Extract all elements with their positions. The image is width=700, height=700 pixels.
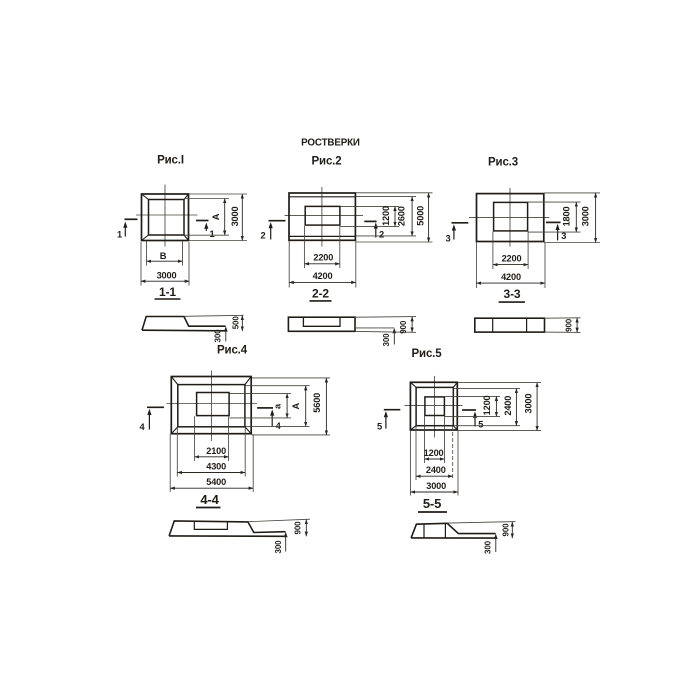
svg-text:900: 900 bbox=[565, 318, 574, 332]
svg-text:900: 900 bbox=[294, 521, 303, 535]
svg-text:300: 300 bbox=[274, 540, 283, 554]
svg-text:5400: 5400 bbox=[206, 477, 226, 487]
svg-text:Рис.4: Рис.4 bbox=[217, 345, 248, 357]
svg-text:1200: 1200 bbox=[482, 395, 492, 415]
svg-text:Рис.2: Рис.2 bbox=[312, 156, 342, 168]
svg-text:3000: 3000 bbox=[426, 481, 446, 491]
svg-text:Рис.5: Рис.5 bbox=[412, 348, 443, 360]
svg-text:300: 300 bbox=[214, 329, 223, 343]
svg-text:4-4: 4-4 bbox=[200, 492, 219, 507]
svg-text:4300: 4300 bbox=[206, 462, 226, 472]
svg-text:2: 2 bbox=[260, 231, 265, 241]
svg-text:3000: 3000 bbox=[157, 271, 177, 281]
svg-text:500: 500 bbox=[232, 316, 241, 330]
svg-text:300: 300 bbox=[382, 333, 391, 347]
svg-text:a: a bbox=[272, 403, 282, 409]
svg-text:2-2: 2-2 bbox=[312, 286, 329, 300]
svg-text:2100: 2100 bbox=[206, 446, 226, 456]
svg-text:300: 300 bbox=[483, 540, 492, 554]
svg-text:Рис.I: Рис.I bbox=[157, 155, 184, 167]
svg-text:2400: 2400 bbox=[426, 465, 446, 475]
svg-text:5-5: 5-5 bbox=[423, 496, 441, 511]
svg-text:2200: 2200 bbox=[502, 253, 522, 263]
svg-text:2200: 2200 bbox=[313, 253, 333, 263]
svg-text:900: 900 bbox=[399, 320, 408, 334]
svg-text:1-1: 1-1 bbox=[159, 285, 176, 299]
svg-text:2400: 2400 bbox=[503, 396, 513, 416]
svg-text:2: 2 bbox=[379, 230, 384, 240]
svg-text:A: A bbox=[211, 213, 221, 220]
svg-text:5600: 5600 bbox=[312, 393, 322, 413]
svg-text:900: 900 bbox=[502, 523, 511, 537]
svg-text:Рис.3: Рис.3 bbox=[488, 157, 518, 169]
svg-text:3: 3 bbox=[445, 234, 450, 244]
svg-text:1: 1 bbox=[117, 230, 122, 240]
svg-text:3-3: 3-3 bbox=[504, 287, 521, 301]
svg-text:5000: 5000 bbox=[415, 206, 425, 226]
svg-text:4200: 4200 bbox=[313, 271, 333, 281]
svg-text:3000: 3000 bbox=[523, 394, 533, 414]
svg-text:2600: 2600 bbox=[396, 206, 406, 226]
svg-text:5: 5 bbox=[478, 420, 483, 430]
svg-text:5: 5 bbox=[377, 422, 382, 432]
svg-text:3000: 3000 bbox=[230, 207, 240, 227]
svg-text:3000: 3000 bbox=[580, 206, 590, 226]
svg-text:1200: 1200 bbox=[424, 448, 444, 458]
svg-text:РОСТВЕРКИ: РОСТВЕРКИ bbox=[301, 138, 360, 149]
svg-text:A: A bbox=[291, 402, 301, 409]
svg-text:4: 4 bbox=[276, 421, 282, 431]
svg-text:4: 4 bbox=[139, 422, 145, 432]
svg-text:В: В bbox=[160, 251, 167, 261]
svg-text:1200: 1200 bbox=[381, 206, 391, 226]
svg-text:1800: 1800 bbox=[561, 207, 571, 227]
svg-text:1: 1 bbox=[209, 229, 214, 239]
svg-text:4200: 4200 bbox=[501, 272, 521, 282]
